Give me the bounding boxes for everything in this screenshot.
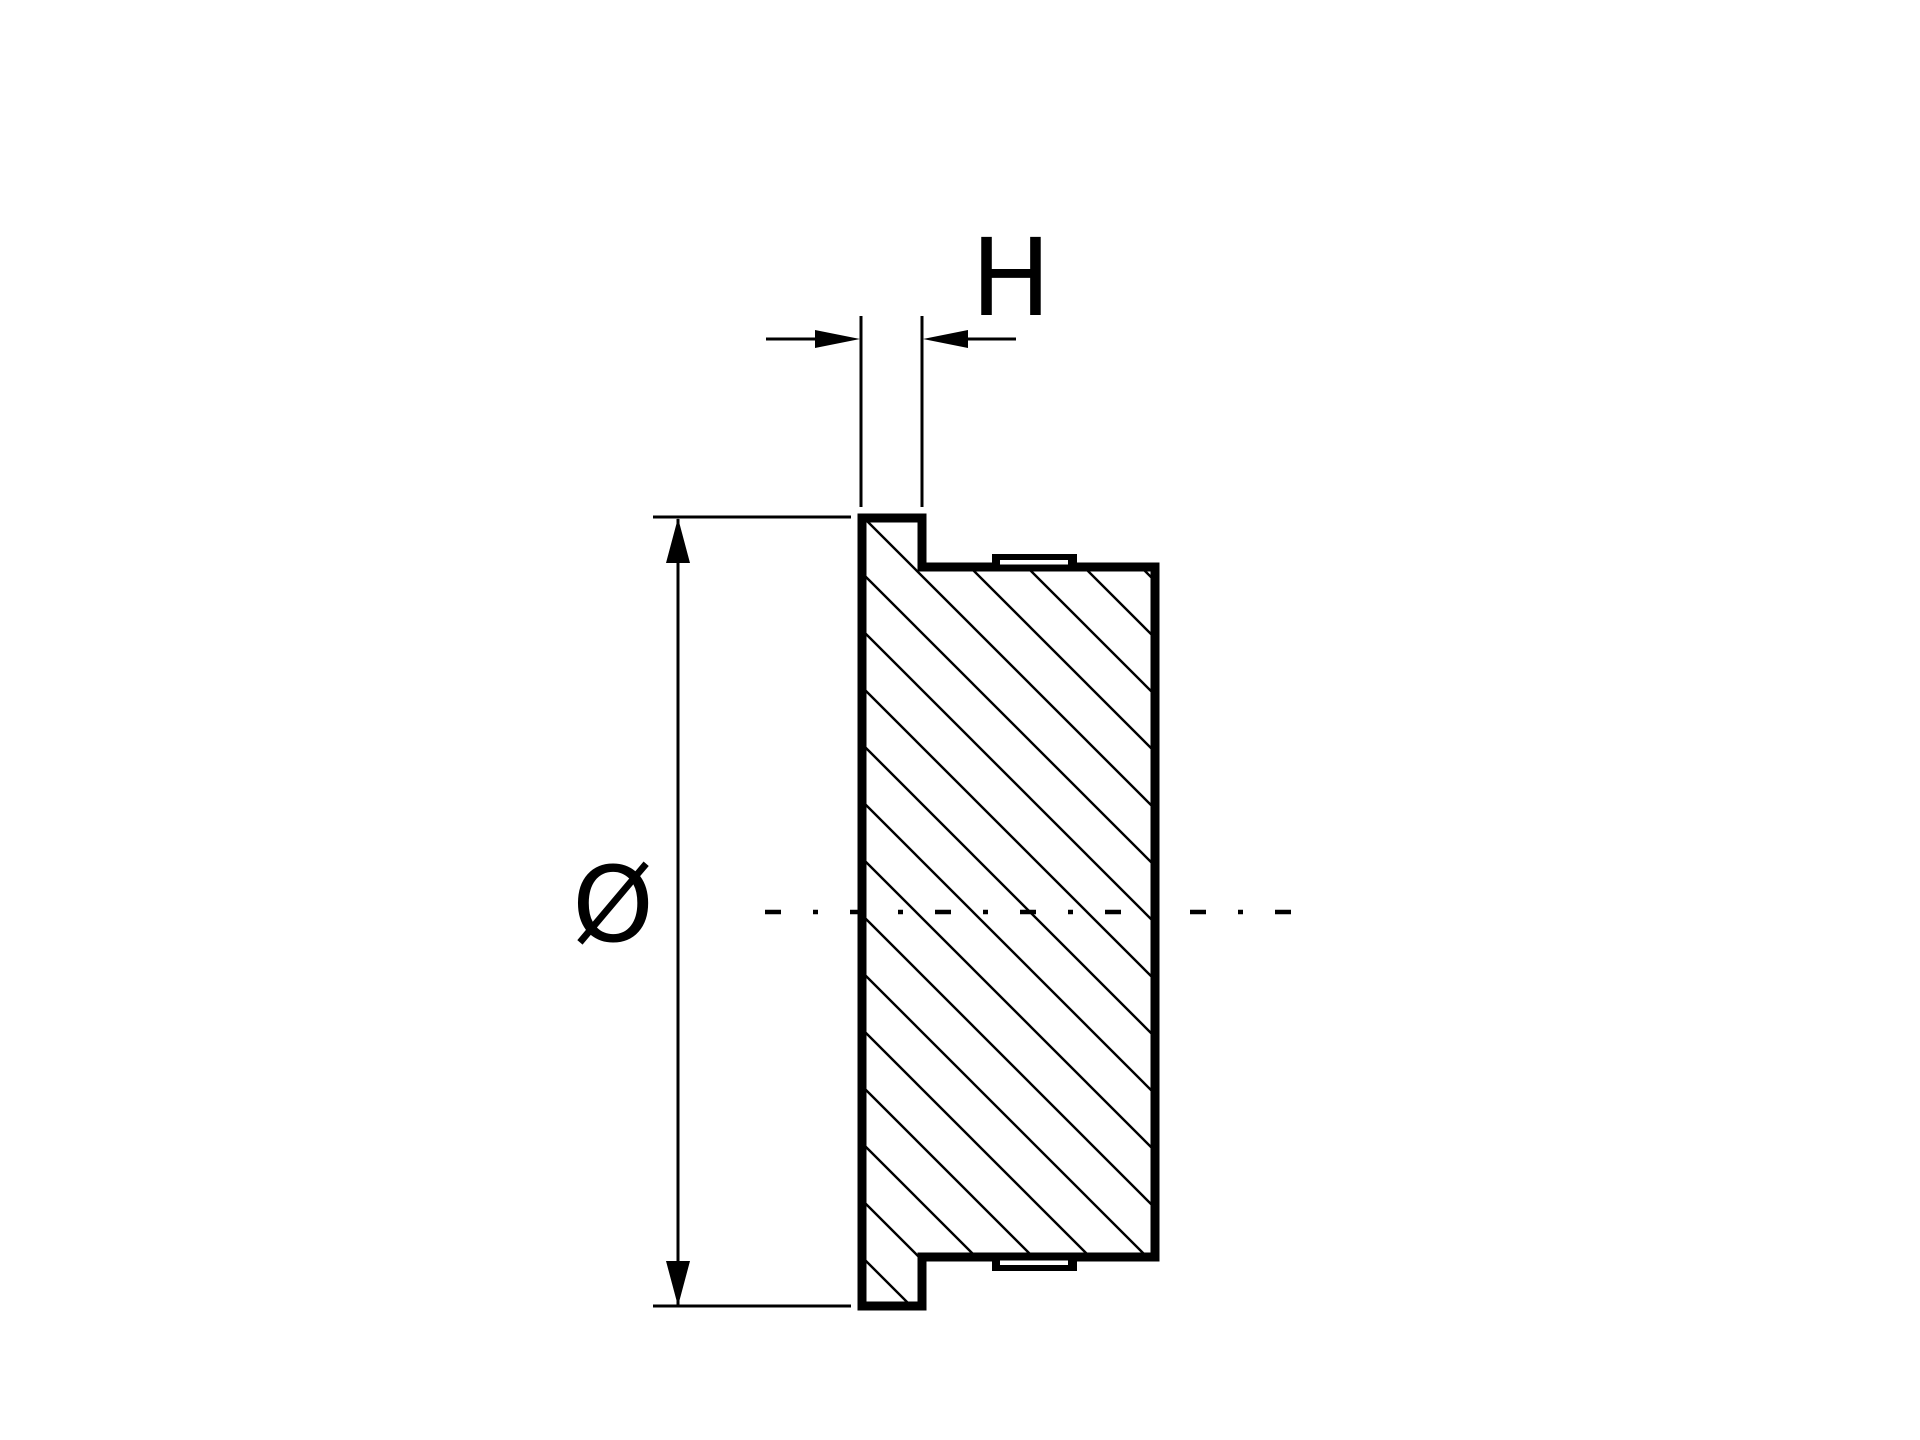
diameter-arrow-up-icon (666, 518, 690, 563)
bottom-seam-tab-slot (1000, 1261, 1068, 1266)
diameter-arrow-down-icon (666, 1261, 690, 1306)
thickness-arrow-left-icon (923, 330, 968, 348)
technical-drawing: Ø H (0, 0, 1920, 1440)
top-seam-tab-slot (1000, 560, 1068, 565)
diameter-dimension: Ø (572, 517, 851, 1306)
drawing-sheet: Ø H (0, 0, 1920, 1440)
thickness-label: H (971, 217, 1051, 341)
diameter-symbol: Ø (572, 844, 654, 966)
thickness-dimension: H (766, 217, 1051, 507)
thickness-arrow-right-icon (815, 330, 860, 348)
